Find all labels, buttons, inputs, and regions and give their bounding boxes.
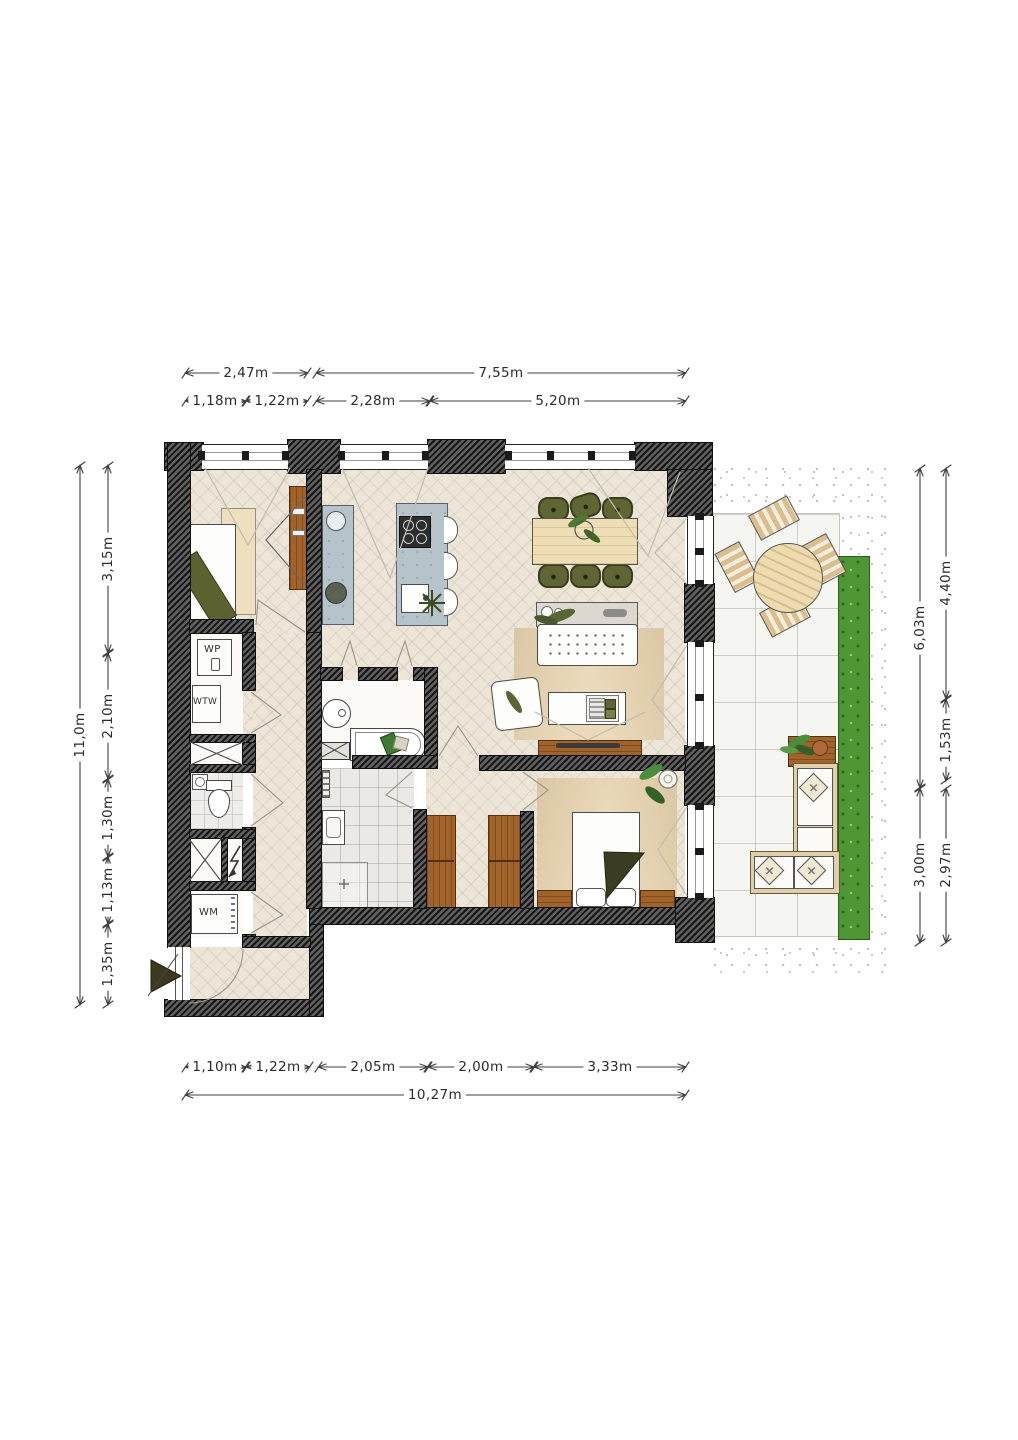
wall <box>676 898 714 942</box>
dim-bottom-1-10: 1,10m <box>188 1059 241 1075</box>
entrance-hall-floor <box>190 947 310 1000</box>
tray-item <box>605 709 616 719</box>
dim-bottom-3-33: 3,33m <box>583 1059 636 1075</box>
window-mullion <box>282 451 289 460</box>
dim-left-1-30: 1,30m <box>100 791 116 844</box>
washbasin <box>322 699 351 728</box>
window-mullion <box>695 694 704 701</box>
wall <box>428 440 505 473</box>
desk <box>289 486 309 590</box>
wall <box>168 443 190 947</box>
dim-right-3-00: 3,00m <box>912 838 928 891</box>
wall <box>165 1000 322 1016</box>
window-mullion <box>695 893 704 900</box>
wall <box>668 470 712 516</box>
burner <box>403 520 414 531</box>
shaft <box>321 742 350 760</box>
sideboard-item <box>541 606 553 618</box>
dim-right-4-40: 4,40m <box>938 556 954 609</box>
nightstand <box>640 890 675 910</box>
floor-plan: WP WTW WM <box>0 0 1018 1440</box>
dim-right-1-53: 1,53m <box>938 713 954 766</box>
wall <box>310 910 323 1016</box>
shower <box>322 862 368 909</box>
wall <box>480 756 685 770</box>
window-mullion <box>695 580 704 587</box>
window-mullion <box>505 451 512 460</box>
wall <box>685 584 714 642</box>
sofa-tufting <box>546 631 628 658</box>
wall <box>190 620 253 633</box>
plant-pot <box>812 740 828 756</box>
wall <box>635 443 712 470</box>
kitchen-basin <box>325 582 347 604</box>
dim-right-6-03: 6,03m <box>912 601 928 654</box>
wall <box>521 812 533 908</box>
dim-left-2-10: 2,10m <box>100 689 116 742</box>
sideboard-item <box>554 608 563 617</box>
front-door <box>168 947 190 1000</box>
window-mullion <box>382 451 389 460</box>
wall <box>288 440 340 473</box>
wall <box>190 735 255 742</box>
dim-right-2-97: 2,97m <box>938 838 954 891</box>
window-mullion <box>695 742 704 749</box>
washing-machine-detail <box>231 897 235 929</box>
dim-left-11-0: 11,0m <box>72 708 88 761</box>
radiator <box>322 770 330 798</box>
wall <box>243 633 255 690</box>
wall <box>190 830 255 838</box>
dining-chair <box>602 564 633 588</box>
washing-machine-label: WM <box>199 907 218 918</box>
burner <box>403 533 414 544</box>
dim-top-5-20: 5,20m <box>531 393 584 409</box>
dim-top-1-22: 1,22m <box>250 393 303 409</box>
tray-item <box>605 699 616 709</box>
wall <box>243 937 310 947</box>
wardrobe <box>488 815 524 910</box>
wall <box>353 756 437 768</box>
window-mullion <box>695 513 704 520</box>
dim-bottom-2-00: 2,00m <box>454 1059 507 1075</box>
vanity-sink <box>326 817 341 838</box>
dim-top-2-47: 2,47m <box>219 365 272 381</box>
window <box>505 444 635 470</box>
window-mullion <box>695 640 704 647</box>
dim-top-2-28: 2,28m <box>346 393 399 409</box>
dining-table <box>532 518 638 565</box>
dim-left-1-35: 1,35m <box>100 937 116 990</box>
burner <box>416 520 427 531</box>
wall <box>685 746 714 805</box>
window-mullion <box>242 451 249 460</box>
dining-chair <box>570 564 601 588</box>
tv <box>556 743 620 748</box>
dim-left-1-13: 1,13m <box>100 863 116 916</box>
pillow <box>606 888 636 907</box>
window-mullion <box>695 803 704 810</box>
wall <box>190 765 255 772</box>
dim-top-7-55: 7,55m <box>474 365 527 381</box>
desk-item <box>292 530 305 536</box>
wall <box>414 810 426 908</box>
dim-top-1-18: 1,18m <box>188 393 241 409</box>
dim-bottom-2-05: 2,05m <box>346 1059 399 1075</box>
burner <box>416 533 427 544</box>
closet-floor <box>190 742 243 765</box>
wall <box>307 470 321 633</box>
heat-pump-label: WP <box>204 644 221 655</box>
window-mullion <box>338 451 345 460</box>
wall <box>310 908 714 924</box>
wall <box>425 668 437 768</box>
heat-pump-detail <box>211 658 220 671</box>
kitchen-sink <box>326 511 346 531</box>
book-stack <box>589 698 605 719</box>
faucet <box>423 595 429 601</box>
dining-chair <box>538 564 569 588</box>
wall <box>307 633 321 908</box>
window-mullion <box>695 548 704 555</box>
sideboard-item <box>603 609 627 617</box>
window-mullion <box>422 451 429 460</box>
pillow <box>576 888 606 907</box>
window-mullion <box>198 451 205 460</box>
hedge <box>838 556 870 940</box>
dim-bottom-10-27: 10,27m <box>404 1087 466 1103</box>
window-mullion <box>588 451 595 460</box>
wall <box>359 668 397 680</box>
window-mullion <box>695 848 704 855</box>
window-mullion <box>547 451 554 460</box>
corner-sink-bowl <box>195 777 205 787</box>
armchair <box>490 676 544 731</box>
window-mullion <box>629 451 636 460</box>
wall <box>190 882 255 890</box>
dim-left-3-15: 3,15m <box>100 532 116 585</box>
heat-recovery-label: WTW <box>193 697 217 707</box>
dim-bottom-1-22: 1,22m <box>251 1059 304 1075</box>
wall <box>321 668 342 680</box>
desk-item <box>292 508 305 515</box>
nightstand <box>537 890 572 910</box>
outdoor-table <box>753 543 823 613</box>
wall <box>222 838 227 882</box>
closet-floor <box>188 838 222 882</box>
washbasin-drain <box>338 709 346 717</box>
wardrobe-shelf-line <box>488 860 522 862</box>
